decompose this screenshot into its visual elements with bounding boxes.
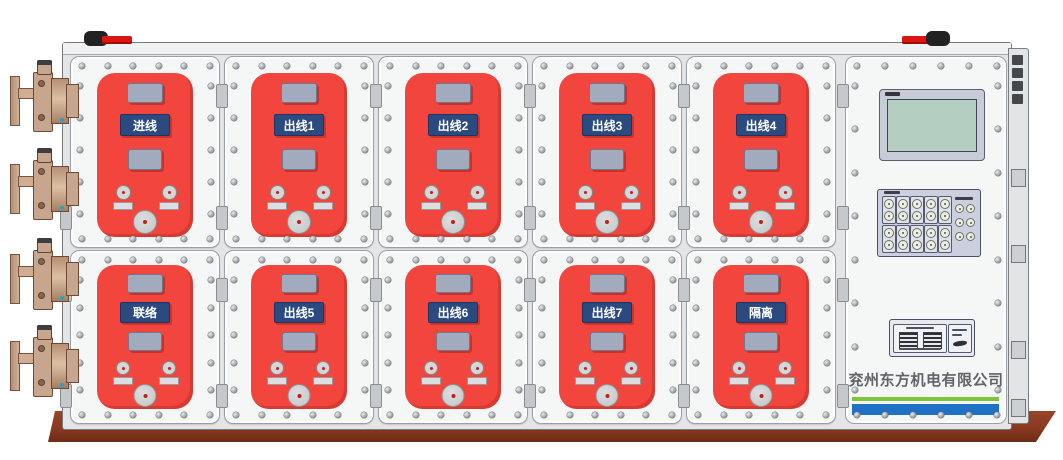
keypad-button[interactable] bbox=[940, 199, 950, 209]
bolt bbox=[824, 147, 830, 153]
bolt bbox=[516, 305, 522, 311]
bolt bbox=[79, 63, 85, 69]
nameplate-caption-line bbox=[899, 348, 941, 350]
keypad-button[interactable] bbox=[966, 204, 975, 213]
bolt bbox=[130, 236, 136, 242]
operate-knob[interactable] bbox=[162, 361, 176, 375]
bolt bbox=[259, 257, 265, 263]
door-red-faceplate: 出线6 bbox=[405, 265, 501, 409]
bolt bbox=[207, 257, 213, 263]
flange-top-cap bbox=[37, 148, 52, 163]
bolt bbox=[231, 360, 237, 366]
operate-knob[interactable] bbox=[778, 185, 793, 200]
keypad-side-header-mark bbox=[955, 197, 973, 200]
bolt bbox=[539, 387, 545, 393]
bolt bbox=[207, 63, 213, 69]
keypad-button[interactable] bbox=[940, 228, 950, 238]
door-hinge bbox=[678, 206, 690, 230]
bolt bbox=[824, 360, 830, 366]
display-screen bbox=[879, 89, 985, 161]
flange-hub-step bbox=[66, 84, 79, 118]
bolt bbox=[489, 412, 495, 418]
operate-knob[interactable] bbox=[162, 185, 177, 200]
bolt bbox=[335, 63, 341, 69]
bolt bbox=[772, 63, 778, 69]
bolt bbox=[259, 236, 265, 242]
handle-bar bbox=[102, 36, 132, 44]
bolt bbox=[670, 387, 676, 393]
side-hinge bbox=[1011, 245, 1026, 263]
keypad-button[interactable] bbox=[955, 204, 964, 213]
bolt bbox=[670, 332, 676, 338]
bolt bbox=[438, 257, 444, 263]
bolt bbox=[181, 257, 187, 263]
bolt bbox=[670, 360, 676, 366]
bolt bbox=[995, 257, 1001, 263]
bolt bbox=[643, 236, 649, 242]
operate-knob[interactable] bbox=[116, 185, 131, 200]
keypad-button[interactable] bbox=[966, 232, 975, 241]
interlock-knob[interactable] bbox=[288, 384, 311, 407]
bolt bbox=[693, 387, 699, 393]
operate-knob[interactable] bbox=[470, 361, 484, 375]
bolt bbox=[541, 63, 547, 69]
cabinet-right-side bbox=[1008, 48, 1029, 424]
keypad-button[interactable] bbox=[884, 199, 894, 209]
knob-plate bbox=[621, 377, 641, 385]
circuit-label: 出线7 bbox=[582, 302, 632, 323]
door-window-top bbox=[743, 274, 779, 293]
interlock-knob[interactable] bbox=[750, 384, 773, 407]
bolt bbox=[643, 63, 649, 69]
compartment-door: 出线3 bbox=[532, 56, 682, 248]
bolt bbox=[669, 63, 675, 69]
bolt bbox=[515, 257, 521, 263]
keypad-button[interactable] bbox=[884, 240, 894, 250]
keypad-button[interactable] bbox=[912, 240, 922, 250]
operate-knob[interactable] bbox=[270, 361, 284, 375]
nameplate-diagram-box bbox=[893, 324, 947, 353]
bolt bbox=[824, 211, 830, 217]
bolt bbox=[385, 277, 391, 283]
bolt bbox=[854, 63, 860, 69]
indicator-dot bbox=[60, 206, 64, 210]
control-keypad bbox=[877, 189, 981, 257]
operate-knob[interactable] bbox=[470, 185, 485, 200]
keypad-button[interactable] bbox=[966, 218, 975, 227]
bolt bbox=[385, 387, 391, 393]
door-window-top bbox=[589, 274, 625, 293]
cable-entry-flange bbox=[8, 236, 74, 312]
bolt bbox=[438, 63, 444, 69]
operate-knob[interactable] bbox=[578, 361, 592, 375]
bolt bbox=[208, 147, 214, 153]
bolt bbox=[208, 387, 214, 393]
bolt bbox=[208, 332, 214, 338]
bolt bbox=[361, 63, 367, 69]
operate-knob[interactable] bbox=[424, 185, 439, 200]
circuit-label: 联络 bbox=[120, 302, 170, 323]
keypad-button[interactable] bbox=[912, 199, 922, 209]
door-hinge bbox=[837, 206, 849, 230]
bolt bbox=[539, 115, 545, 121]
keypad-button[interactable] bbox=[926, 211, 936, 221]
interlock-knob[interactable] bbox=[596, 384, 619, 407]
bolt bbox=[489, 63, 495, 69]
bolt bbox=[79, 412, 85, 418]
bolt bbox=[852, 170, 858, 176]
bolt bbox=[746, 236, 752, 242]
connector-module bbox=[938, 196, 952, 224]
indicator-dot bbox=[60, 118, 64, 122]
compartment-door: 出线4 bbox=[686, 56, 836, 248]
nameplate-info-box bbox=[948, 324, 972, 353]
flange-plate bbox=[33, 250, 53, 310]
door-red-faceplate: 出线4 bbox=[713, 73, 809, 237]
vent-block bbox=[1012, 94, 1023, 104]
bolt bbox=[438, 236, 444, 242]
bolt bbox=[385, 332, 391, 338]
bolt bbox=[797, 257, 803, 263]
operate-knob[interactable] bbox=[270, 185, 285, 200]
bolt bbox=[938, 63, 944, 69]
bolt bbox=[130, 63, 136, 69]
flange-top-cap bbox=[37, 238, 52, 253]
bolt bbox=[105, 236, 111, 242]
lcd-area bbox=[887, 99, 977, 152]
compartment-door: 进线 bbox=[70, 56, 220, 248]
bolt bbox=[541, 236, 547, 242]
door-hinge bbox=[216, 384, 228, 408]
bolt bbox=[824, 387, 830, 393]
bolt bbox=[284, 412, 290, 418]
bolt bbox=[910, 63, 916, 69]
bolt bbox=[362, 179, 368, 185]
door-red-faceplate: 联络 bbox=[97, 265, 193, 409]
bolt bbox=[669, 412, 675, 418]
connector-module bbox=[938, 225, 952, 253]
keypad-button[interactable] bbox=[898, 211, 908, 221]
door-window-bottom bbox=[590, 149, 624, 170]
door-window-bottom bbox=[590, 332, 624, 351]
bolt bbox=[670, 83, 676, 89]
door-window-bottom bbox=[744, 332, 778, 351]
info-line bbox=[952, 329, 967, 331]
connector-module bbox=[924, 225, 938, 253]
cable-entry-flange bbox=[8, 58, 74, 134]
flange-back-plate bbox=[10, 341, 20, 391]
bolt bbox=[721, 412, 727, 418]
nameplate-title-line bbox=[906, 327, 934, 329]
bolt bbox=[772, 412, 778, 418]
bolt bbox=[797, 412, 803, 418]
door-hinge bbox=[216, 278, 228, 302]
bolt bbox=[882, 412, 888, 418]
flange-plate bbox=[33, 160, 53, 220]
bolt bbox=[181, 236, 187, 242]
bolt bbox=[413, 412, 419, 418]
bolt bbox=[231, 211, 237, 217]
knob-plate bbox=[313, 377, 333, 385]
bolt bbox=[772, 236, 778, 242]
bolt bbox=[335, 412, 341, 418]
compartment-door: 联络 bbox=[70, 250, 220, 424]
flange-top-cap bbox=[37, 325, 52, 340]
interlock-knob[interactable] bbox=[287, 210, 311, 234]
door-window-top bbox=[435, 274, 471, 293]
interlock-knob[interactable] bbox=[442, 384, 465, 407]
bolt bbox=[207, 412, 213, 418]
compartment-door: 隔离 bbox=[686, 250, 836, 424]
green-stripe bbox=[852, 397, 999, 401]
knob-plate bbox=[621, 202, 641, 210]
bolt bbox=[233, 412, 239, 418]
bolt bbox=[79, 236, 85, 242]
door-red-faceplate: 出线7 bbox=[559, 265, 655, 409]
operate-knob[interactable] bbox=[624, 185, 639, 200]
door-window-bottom bbox=[128, 149, 162, 170]
bolt bbox=[693, 115, 699, 121]
bolt bbox=[938, 412, 944, 418]
bolt bbox=[669, 236, 675, 242]
bolt bbox=[746, 412, 752, 418]
bolt bbox=[362, 147, 368, 153]
keypad-button[interactable] bbox=[926, 199, 936, 209]
bolt bbox=[618, 412, 624, 418]
door-hinge bbox=[678, 278, 690, 302]
connector-module bbox=[924, 196, 938, 224]
keypad-button[interactable] bbox=[898, 228, 908, 238]
bolt bbox=[310, 257, 316, 263]
operate-knob[interactable] bbox=[316, 185, 331, 200]
operate-knob[interactable] bbox=[424, 361, 438, 375]
bolt bbox=[489, 257, 495, 263]
bolt bbox=[156, 412, 162, 418]
operate-knob[interactable] bbox=[624, 361, 638, 375]
bolt bbox=[362, 332, 368, 338]
bolt bbox=[361, 236, 367, 242]
bolt bbox=[284, 236, 290, 242]
flange-plate bbox=[33, 72, 53, 132]
compartment-door: 出线5 bbox=[224, 250, 374, 424]
bolt bbox=[695, 412, 701, 418]
bolt bbox=[362, 115, 368, 121]
bolt bbox=[105, 63, 111, 69]
keypad-button[interactable] bbox=[912, 228, 922, 238]
screen-brand-mark bbox=[885, 92, 900, 96]
bolt bbox=[516, 211, 522, 217]
knob-plate bbox=[575, 202, 595, 210]
circuit-label: 出线4 bbox=[736, 114, 786, 136]
bolt bbox=[995, 387, 1001, 393]
bolt bbox=[362, 305, 368, 311]
bolt bbox=[910, 412, 916, 418]
keypad-button[interactable] bbox=[884, 228, 894, 238]
bolt bbox=[823, 257, 829, 263]
signature-mark bbox=[953, 340, 967, 346]
circuit-label: 出线6 bbox=[428, 302, 478, 323]
knob-plate bbox=[729, 202, 749, 210]
vent-block bbox=[1012, 68, 1023, 78]
knob-plate bbox=[575, 377, 595, 385]
bolt bbox=[231, 179, 237, 185]
door-hinge bbox=[837, 84, 849, 108]
bolt bbox=[464, 412, 470, 418]
bolt bbox=[516, 115, 522, 121]
keypad-button[interactable] bbox=[898, 199, 908, 209]
keypad-button[interactable] bbox=[940, 211, 950, 221]
flange-back-plate bbox=[10, 76, 20, 126]
door-hinge bbox=[370, 384, 382, 408]
bolt bbox=[208, 277, 214, 283]
handle-cap bbox=[926, 31, 950, 46]
interlock-knob[interactable] bbox=[441, 210, 465, 234]
bolt bbox=[156, 63, 162, 69]
bolt bbox=[670, 277, 676, 283]
door-hinge bbox=[524, 84, 536, 108]
door-red-faceplate: 出线2 bbox=[405, 73, 501, 237]
bolt bbox=[592, 63, 598, 69]
knob-plate bbox=[267, 377, 287, 385]
bolt bbox=[231, 277, 237, 283]
door-hinge bbox=[216, 84, 228, 108]
bolt bbox=[693, 179, 699, 185]
keypad-button[interactable] bbox=[955, 232, 964, 241]
bolt bbox=[361, 412, 367, 418]
door-hinge bbox=[370, 206, 382, 230]
bolt bbox=[387, 63, 393, 69]
knob-plate bbox=[313, 202, 333, 210]
bolt bbox=[464, 63, 470, 69]
keypad-button[interactable] bbox=[940, 240, 950, 250]
keypad-button[interactable] bbox=[898, 240, 908, 250]
bolt bbox=[362, 387, 368, 393]
door-window-bottom bbox=[282, 149, 316, 170]
operate-knob[interactable] bbox=[778, 361, 792, 375]
bolt bbox=[385, 211, 391, 217]
blue-stripe bbox=[852, 404, 999, 415]
interlock-knob[interactable] bbox=[595, 210, 619, 234]
bolt bbox=[489, 236, 495, 242]
left-top-handle[interactable] bbox=[84, 28, 132, 48]
bolt bbox=[231, 83, 237, 89]
bolt bbox=[413, 257, 419, 263]
bolt bbox=[105, 412, 111, 418]
right-top-handle[interactable] bbox=[902, 28, 950, 48]
bolt bbox=[539, 211, 545, 217]
bolt bbox=[772, 257, 778, 263]
bolt bbox=[852, 213, 858, 219]
instrument-panel-door: 兖州东方机电有限公司 bbox=[845, 56, 1007, 424]
door-window-bottom bbox=[744, 149, 778, 170]
keypad-button[interactable] bbox=[912, 211, 922, 221]
flange-top-cap bbox=[37, 60, 52, 75]
bolt bbox=[539, 179, 545, 185]
terminal-diagram bbox=[899, 332, 918, 349]
bolt bbox=[413, 236, 419, 242]
door-window-bottom bbox=[436, 332, 470, 351]
keypad-button[interactable] bbox=[884, 211, 894, 221]
door-window-top bbox=[127, 274, 163, 293]
knob-plate bbox=[729, 377, 749, 385]
bolt bbox=[438, 412, 444, 418]
terminal-diagram bbox=[923, 332, 942, 349]
bolt bbox=[156, 236, 162, 242]
flange-hub-step bbox=[66, 349, 79, 383]
flange-hub-step bbox=[66, 172, 79, 206]
bolt bbox=[233, 236, 239, 242]
door-hinge bbox=[216, 206, 228, 230]
door-window-top bbox=[127, 83, 163, 103]
bolt bbox=[77, 387, 83, 393]
bolt bbox=[362, 83, 368, 89]
keypad-button[interactable] bbox=[926, 228, 936, 238]
compartment-door: 出线2 bbox=[378, 56, 528, 248]
bolt bbox=[995, 83, 1001, 89]
bolt bbox=[284, 63, 290, 69]
knob-plate bbox=[421, 202, 441, 210]
keypad-button[interactable] bbox=[955, 218, 964, 227]
bolt bbox=[567, 236, 573, 242]
cabinet-top-rail bbox=[63, 43, 1011, 55]
bolt bbox=[695, 257, 701, 263]
bolt bbox=[516, 179, 522, 185]
operate-knob[interactable] bbox=[732, 361, 746, 375]
bolt bbox=[670, 305, 676, 311]
bolt bbox=[516, 83, 522, 89]
bolt bbox=[995, 300, 1001, 306]
side-hinge bbox=[1011, 341, 1026, 359]
bolt bbox=[618, 63, 624, 69]
bolt bbox=[387, 257, 393, 263]
bolt bbox=[541, 412, 547, 418]
compartment-door: 出线6 bbox=[378, 250, 528, 424]
keypad-button[interactable] bbox=[926, 240, 936, 250]
operate-knob[interactable] bbox=[578, 185, 593, 200]
door-window-top bbox=[435, 83, 471, 103]
bolt bbox=[823, 236, 829, 242]
operate-knob[interactable] bbox=[316, 361, 330, 375]
bolt bbox=[310, 236, 316, 242]
door-window-bottom bbox=[128, 332, 162, 351]
bolt bbox=[643, 257, 649, 263]
operate-knob[interactable] bbox=[116, 361, 130, 375]
door-window-top bbox=[589, 83, 625, 103]
switchgear-cabinet-illustration: 进线出线1出线2出线3出线4联络出线5出线6出线7隔离 兖州东方机电有限公司 bbox=[0, 0, 1063, 460]
bolt bbox=[823, 412, 829, 418]
bolt bbox=[233, 257, 239, 263]
bolt bbox=[966, 63, 972, 69]
door-hinge bbox=[524, 278, 536, 302]
bolt bbox=[156, 257, 162, 263]
door-red-faceplate: 进线 bbox=[97, 73, 193, 237]
interlock-knob[interactable] bbox=[133, 210, 157, 234]
interlock-knob[interactable] bbox=[134, 384, 157, 407]
side-hinge bbox=[1011, 169, 1026, 187]
bolt bbox=[670, 211, 676, 217]
bolt bbox=[515, 236, 521, 242]
side-hinge bbox=[1011, 399, 1026, 417]
bolt bbox=[824, 305, 830, 311]
door-hinge bbox=[370, 278, 382, 302]
bolt bbox=[310, 412, 316, 418]
interlock-knob[interactable] bbox=[749, 210, 773, 234]
operate-knob[interactable] bbox=[732, 185, 747, 200]
bolt bbox=[362, 360, 368, 366]
bolt bbox=[362, 211, 368, 217]
bolt bbox=[539, 83, 545, 89]
flange-back-plate bbox=[10, 164, 20, 214]
